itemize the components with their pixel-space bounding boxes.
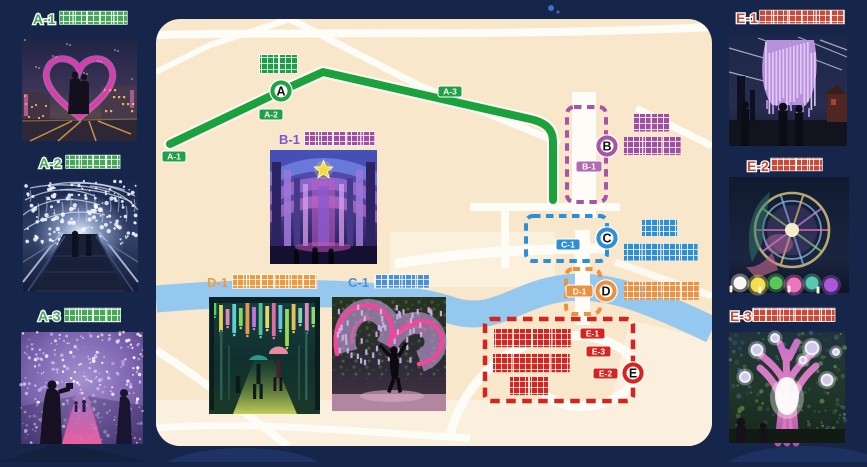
svg-text:E-3: E-3 [730,308,752,324]
svg-text:C-1: C-1 [348,275,369,290]
svg-text:A-1: A-1 [167,151,181,161]
svg-text:D-1: D-1 [573,286,587,296]
svg-text:A-3: A-3 [443,86,457,96]
svg-text:E-2: E-2 [599,368,613,378]
svg-text:A-1: A-1 [33,11,56,27]
svg-text:C-1: C-1 [561,239,575,249]
svg-text:E: E [629,366,637,380]
svg-text:B-1: B-1 [582,161,596,171]
svg-text:B-1: B-1 [279,132,300,147]
svg-text:C: C [602,231,611,245]
svg-text:E-1: E-1 [736,10,758,26]
svg-text:A-2: A-2 [264,109,278,119]
svg-text:B: B [602,139,611,153]
svg-text:A-2: A-2 [39,155,62,171]
svg-text:E-2: E-2 [747,158,769,174]
svg-text:D: D [601,284,610,298]
svg-text:A: A [276,84,285,98]
svg-text:D-1: D-1 [207,275,228,290]
svg-text:E-3: E-3 [592,346,606,356]
svg-text:E-1: E-1 [586,328,600,338]
svg-text:A-3: A-3 [38,308,61,324]
